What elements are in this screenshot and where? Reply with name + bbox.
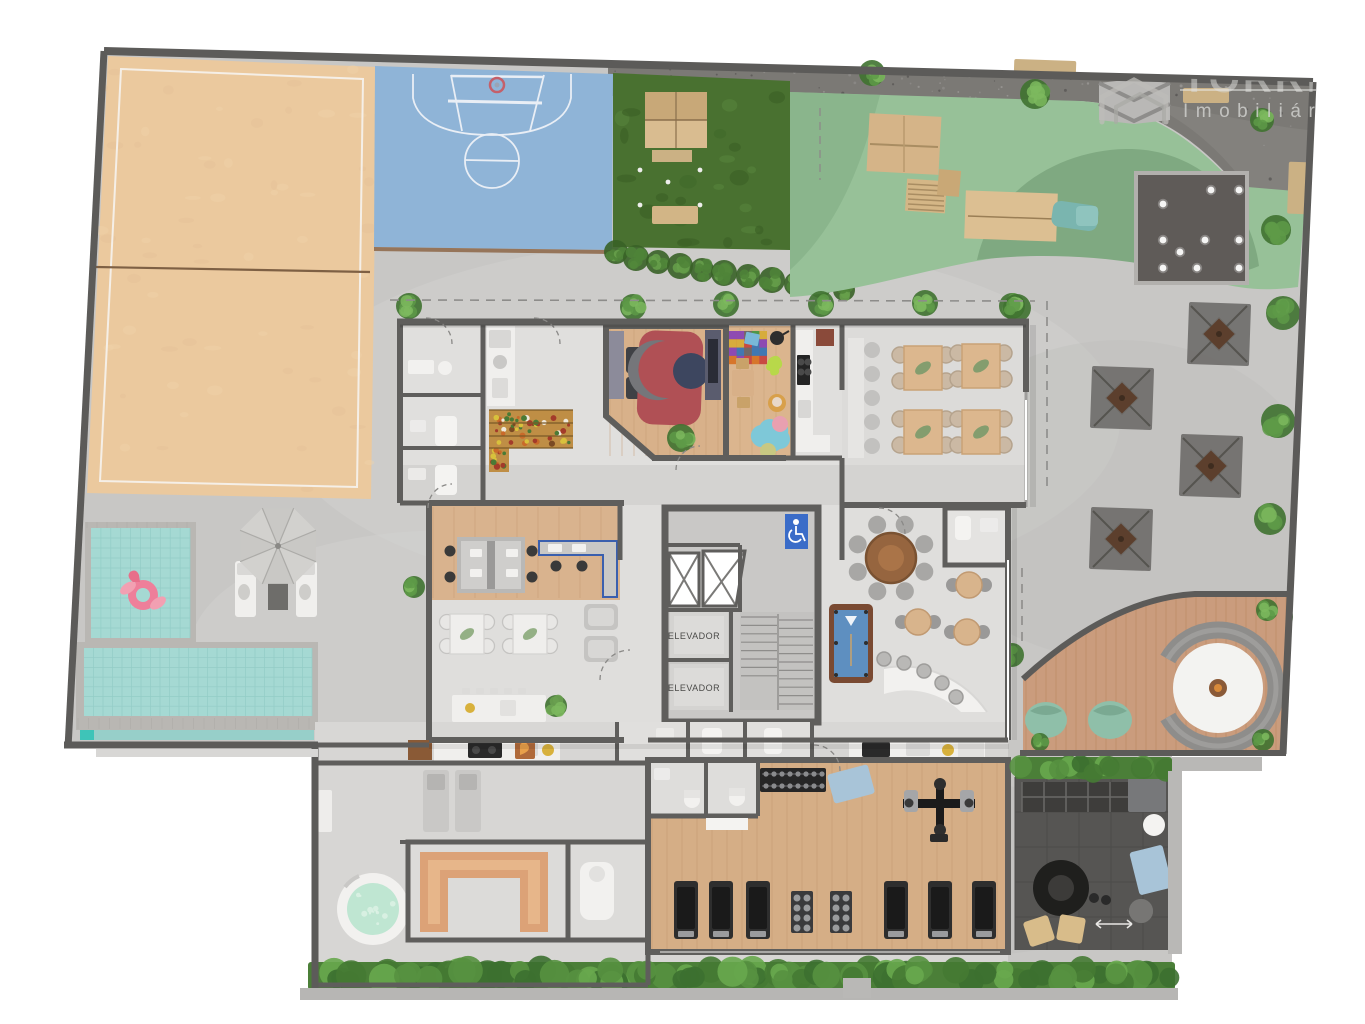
svg-text:Imobiliár: Imobiliár (1183, 101, 1322, 122)
svg-text:ELEVADOR: ELEVADOR (668, 631, 720, 641)
svg-text:ELEVADOR: ELEVADOR (668, 683, 720, 693)
